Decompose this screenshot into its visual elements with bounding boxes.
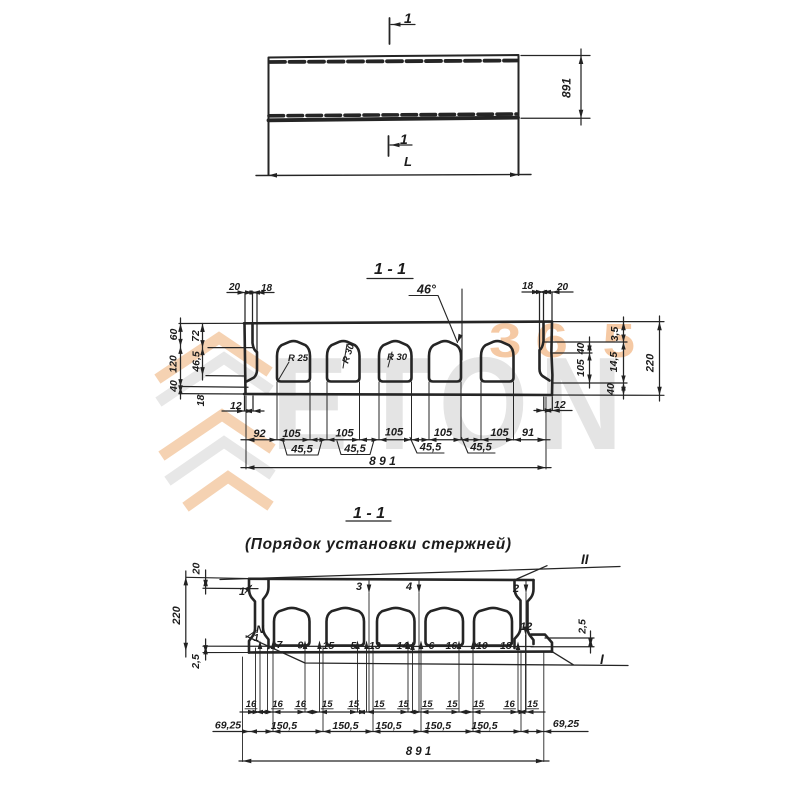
svg-text:220: 220 [645, 353, 657, 373]
svg-text:72: 72 [190, 330, 202, 342]
svg-text:150,5: 150,5 [375, 720, 401, 732]
svg-text:40: 40 [575, 343, 587, 356]
svg-text:18: 18 [195, 395, 207, 407]
svg-text:13: 13 [369, 640, 381, 652]
svg-text:14: 14 [397, 640, 409, 652]
svg-text:1: 1 [239, 586, 245, 598]
svg-text:6: 6 [429, 640, 435, 652]
svg-text:105: 105 [575, 359, 587, 377]
svg-text:9: 9 [298, 640, 304, 652]
svg-text:105: 105 [282, 428, 301, 440]
svg-text:(Порядок установки стержней): (Порядок установки стержней) [245, 536, 511, 553]
svg-text:I: I [600, 652, 604, 667]
svg-text:45,5: 45,5 [290, 444, 313, 456]
svg-text:220: 220 [171, 605, 183, 625]
svg-text:8 9 1: 8 9 1 [369, 454, 396, 468]
svg-text:46,5: 46,5 [191, 351, 203, 373]
svg-text:8 9 1: 8 9 1 [406, 746, 432, 758]
svg-text:1 - 1: 1 - 1 [374, 261, 406, 278]
svg-text:105: 105 [385, 427, 404, 439]
svg-text:92: 92 [253, 428, 265, 440]
svg-text:18: 18 [500, 640, 512, 652]
svg-text:40: 40 [605, 383, 617, 396]
svg-text:2,5: 2,5 [577, 619, 589, 635]
svg-text:18: 18 [522, 281, 534, 292]
svg-text:69,25: 69,25 [553, 718, 579, 730]
svg-text:60: 60 [168, 329, 180, 341]
svg-text:2,5: 2,5 [190, 654, 202, 670]
svg-text:12: 12 [230, 400, 242, 412]
svg-text:14,5: 14,5 [608, 352, 620, 373]
svg-text:10: 10 [476, 640, 488, 652]
svg-text:18: 18 [261, 283, 273, 294]
svg-text:1: 1 [404, 10, 412, 26]
svg-text:46°: 46° [416, 283, 437, 297]
svg-text:150,5: 150,5 [425, 720, 451, 732]
svg-text:3: 3 [356, 581, 362, 593]
svg-text:1: 1 [400, 131, 408, 147]
svg-text:4: 4 [405, 581, 412, 593]
svg-text:120: 120 [168, 355, 180, 373]
svg-text:45,5: 45,5 [343, 443, 366, 455]
svg-text:12: 12 [554, 399, 566, 411]
svg-text:40: 40 [168, 380, 180, 393]
svg-text:2: 2 [512, 583, 519, 595]
svg-text:150,5: 150,5 [271, 720, 297, 732]
svg-text:5: 5 [351, 640, 357, 652]
svg-text:20: 20 [556, 282, 569, 293]
svg-text:R 25: R 25 [288, 353, 309, 364]
svg-text:150,5: 150,5 [332, 720, 358, 732]
svg-text:20: 20 [191, 563, 203, 576]
svg-text:105: 105 [490, 427, 509, 439]
svg-text:69,25: 69,25 [215, 720, 241, 732]
svg-text:L: L [404, 154, 412, 169]
svg-text:105: 105 [434, 427, 453, 439]
svg-text:891: 891 [560, 78, 574, 98]
svg-text:15: 15 [323, 640, 335, 652]
svg-text:150,5: 150,5 [471, 720, 497, 732]
svg-text:20: 20 [228, 282, 241, 293]
svg-text:1: 1 [254, 633, 260, 644]
svg-text:1 - 1: 1 - 1 [353, 505, 385, 522]
svg-text:105: 105 [335, 428, 354, 440]
svg-text:16: 16 [446, 640, 458, 652]
svg-text:3,5: 3,5 [609, 327, 621, 342]
svg-text:45,5: 45,5 [469, 442, 492, 454]
svg-text:45,5: 45,5 [419, 442, 442, 454]
svg-text:91: 91 [522, 427, 534, 439]
svg-text:II: II [581, 552, 589, 567]
